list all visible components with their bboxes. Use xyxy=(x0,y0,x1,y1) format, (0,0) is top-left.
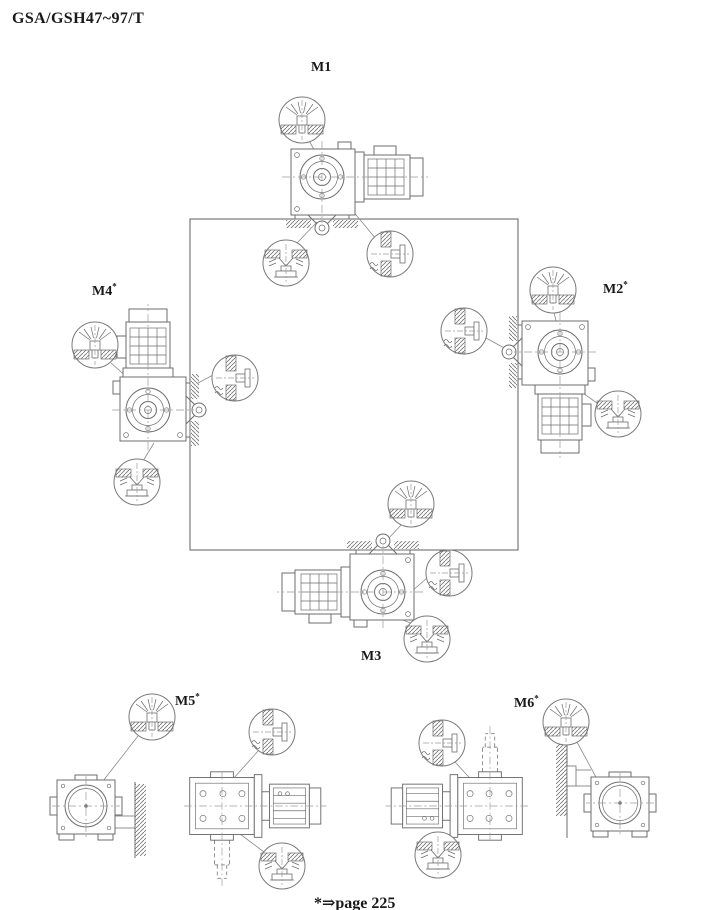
m2-oil-level-plug-icon xyxy=(441,308,487,354)
m6-oil-drain-plug-icon xyxy=(415,832,461,878)
label-m6: M6* xyxy=(514,696,539,712)
label-m5-star: * xyxy=(195,691,200,701)
m6-wall xyxy=(556,742,591,838)
m3-breather-valve-icon xyxy=(388,481,434,527)
label-m4-star: * xyxy=(112,281,117,291)
m2-oil-drain-plug-icon xyxy=(595,391,641,437)
m5-wall xyxy=(115,782,146,858)
label-m3: M3 xyxy=(361,649,381,665)
label-m5: M5* xyxy=(175,694,200,710)
m1-breather-valve-icon xyxy=(279,97,325,143)
label-m2-text: M2 xyxy=(603,282,623,297)
label-m2-star: * xyxy=(623,279,628,289)
label-m4: M4* xyxy=(92,284,117,300)
m6-gear-unit-end-view xyxy=(584,772,656,837)
m5-oil-level-plug-icon xyxy=(249,709,295,755)
label-m3-text: M3 xyxy=(361,649,381,664)
m5-breather-valve-icon xyxy=(129,694,175,740)
m3-oil-level-plug-icon xyxy=(426,550,472,596)
label-m1-text: M1 xyxy=(311,60,331,75)
m4-gear-unit-drawing xyxy=(112,304,206,450)
m6-breather-valve-icon xyxy=(543,699,589,745)
label-m1: M1 xyxy=(311,60,331,76)
label-m2: M2* xyxy=(603,282,628,298)
m5-oil-drain-plug-icon xyxy=(259,843,305,889)
m1-oil-drain-plug-icon xyxy=(263,240,309,286)
footnote: *⇒page 225 xyxy=(314,893,395,910)
page-title: GSA/GSH47~97/T xyxy=(12,10,144,28)
leader-lines xyxy=(103,141,597,852)
m2-gear-unit-drawing xyxy=(502,312,596,458)
label-m6-star: * xyxy=(534,693,539,703)
m1-gear-unit-drawing xyxy=(282,141,428,235)
catalog-page: GSA/GSH47~97/T M1 M2* M3 M4* M5* M6* *⇒p… xyxy=(0,0,708,910)
label-m5-text: M5 xyxy=(175,694,195,709)
m6-oil-level-plug-icon xyxy=(419,720,465,766)
m4-breather-valve-icon xyxy=(72,322,118,368)
m4-oil-level-plug-icon xyxy=(212,355,258,401)
m2-breather-valve-icon xyxy=(530,267,576,313)
m5-gear-unit-end-view xyxy=(50,775,122,840)
m4-oil-drain-plug-icon xyxy=(114,459,160,505)
mounting-positions-diagram xyxy=(0,0,708,910)
label-m4-text: M4 xyxy=(92,284,112,299)
label-m6-text: M6 xyxy=(514,696,534,711)
m3-gear-unit-drawing xyxy=(277,534,423,628)
m3-oil-drain-plug-icon xyxy=(404,616,450,662)
m1-oil-level-plug-icon xyxy=(367,231,413,277)
